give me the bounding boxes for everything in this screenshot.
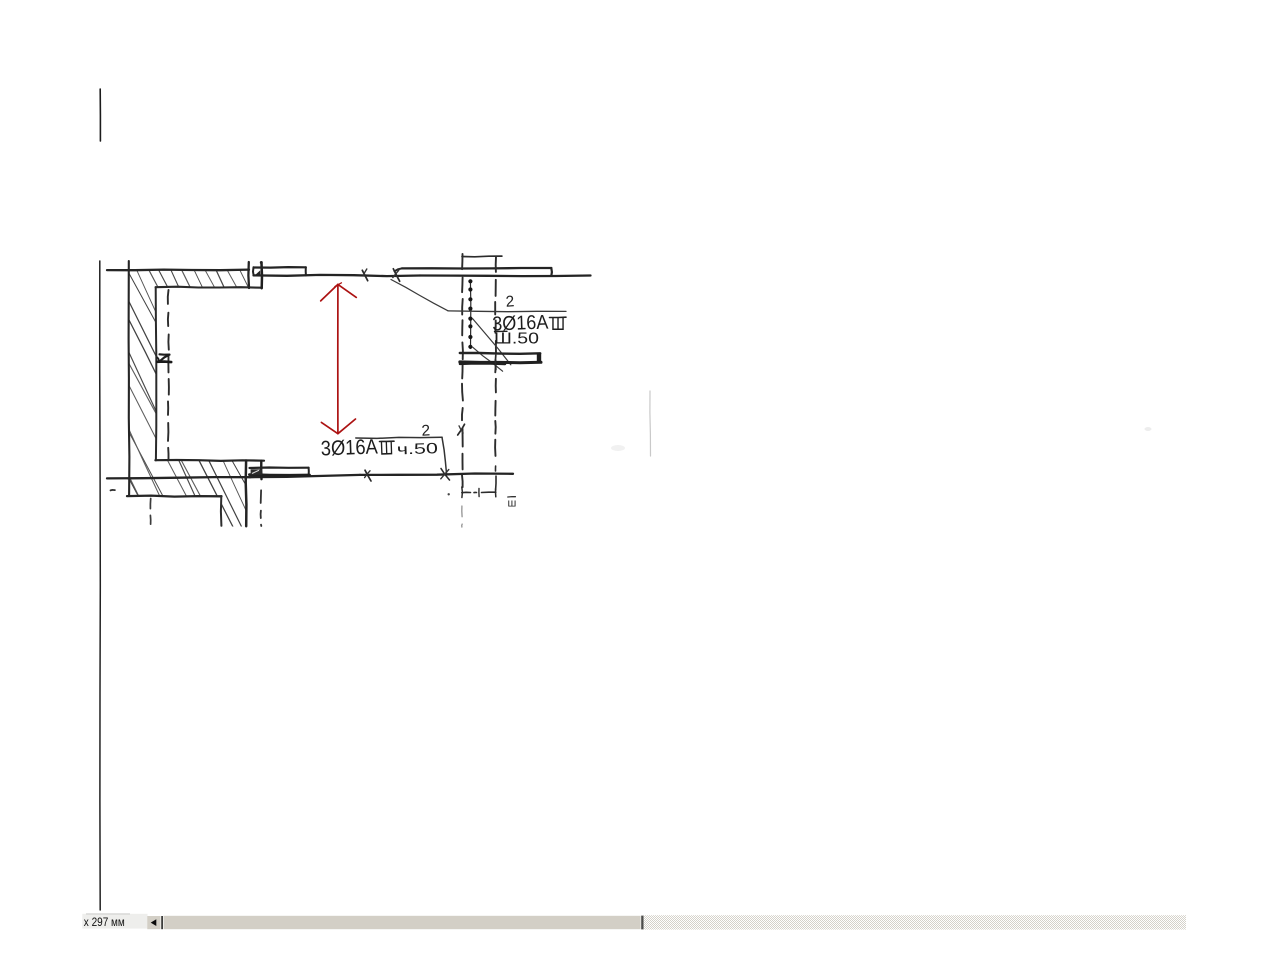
svg-text:ч.50: ч.50: [397, 440, 439, 458]
svg-text:x 297 мм: x 297 мм: [84, 915, 125, 929]
svg-text:ш: ш: [508, 498, 517, 510]
svg-text:Ш.50: Ш.50: [494, 331, 539, 348]
svg-text:3Ø16A: 3Ø16A: [320, 436, 378, 461]
svg-text:2: 2: [505, 293, 515, 311]
